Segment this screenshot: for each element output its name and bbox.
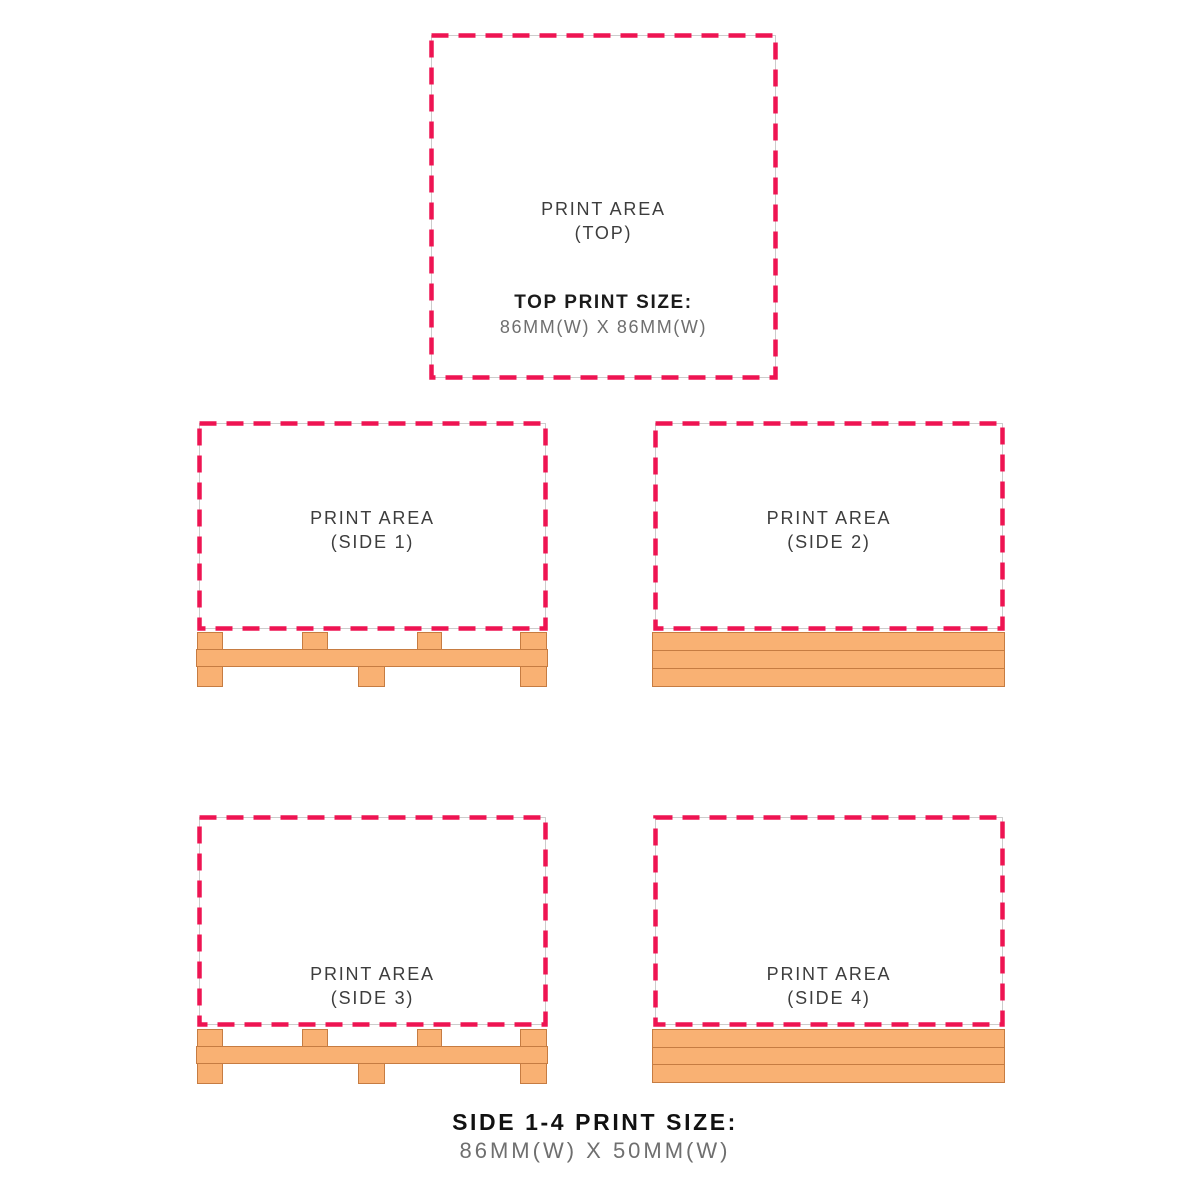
- pallet-slats-graphic-side4: [652, 1029, 1005, 1083]
- print-area-label-side3: PRINT AREA (SIDE 3): [197, 962, 548, 1010]
- pallet-base-graphic-side3: [196, 1029, 548, 1084]
- print-area-label-line2: (TOP): [429, 221, 778, 245]
- pallet-block: [302, 632, 328, 650]
- pallet-block: [197, 632, 223, 650]
- pallet-block: [197, 1029, 223, 1047]
- side-print-size-caption: SIDE 1-4 PRINT SIZE: 86MM(W) X 50MM(W): [295, 1108, 895, 1165]
- pallet-base-graphic-side1: [196, 632, 548, 687]
- print-template-diagram: PRINT AREA (TOP) TOP PRINT SIZE: 86MM(W)…: [0, 0, 1200, 1200]
- print-area-box-side4: PRINT AREA (SIDE 4): [653, 815, 1005, 1027]
- print-area-label-side2: PRINT AREA (SIDE 2): [653, 506, 1005, 554]
- pallet-foot-block: [358, 1063, 385, 1084]
- print-area-label-line1: PRINT AREA: [197, 506, 548, 530]
- top-print-size-block: TOP PRINT SIZE: 86MM(W) X 86MM(W): [429, 291, 778, 339]
- pallet-block: [417, 632, 442, 650]
- pallet-stringer-board: [196, 1046, 548, 1064]
- print-area-label-line1: PRINT AREA: [429, 197, 778, 221]
- pallet-block: [302, 1029, 328, 1047]
- top-print-size-value: 86MM(W) X 86MM(W): [429, 315, 778, 339]
- pallet-foot-block: [358, 666, 385, 687]
- print-area-box-side1: PRINT AREA (SIDE 1): [197, 421, 548, 631]
- pallet-stringer-board: [196, 649, 548, 667]
- pallet-foot-block: [197, 1063, 223, 1084]
- side-print-size-value: 86MM(W) X 50MM(W): [295, 1137, 895, 1165]
- pallet-foot-block: [520, 1063, 547, 1084]
- pallet-block: [520, 632, 547, 650]
- print-area-label-line1: PRINT AREA: [653, 962, 1005, 986]
- pallet-slat: [652, 632, 1005, 651]
- pallet-block: [417, 1029, 442, 1047]
- side-print-size-title: SIDE 1-4 PRINT SIZE:: [295, 1108, 895, 1137]
- pallet-foot-block: [520, 666, 547, 687]
- print-area-label-side4: PRINT AREA (SIDE 4): [653, 962, 1005, 1010]
- print-area-label-line2: (SIDE 2): [653, 530, 1005, 554]
- pallet-foot-block: [197, 666, 223, 687]
- pallet-slat: [652, 1064, 1005, 1083]
- print-area-label-line2: (SIDE 3): [197, 986, 548, 1010]
- pallet-slats-graphic-side2: [652, 632, 1005, 687]
- print-area-label-line1: PRINT AREA: [653, 506, 1005, 530]
- print-area-label-side1: PRINT AREA (SIDE 1): [197, 506, 548, 554]
- print-area-label-top: PRINT AREA (TOP): [429, 197, 778, 245]
- print-area-label-line2: (SIDE 4): [653, 986, 1005, 1010]
- print-area-label-line2: (SIDE 1): [197, 530, 548, 554]
- print-area-label-line1: PRINT AREA: [197, 962, 548, 986]
- print-area-box-top: PRINT AREA (TOP) TOP PRINT SIZE: 86MM(W)…: [429, 33, 778, 380]
- pallet-block: [520, 1029, 547, 1047]
- pallet-slat: [652, 650, 1005, 669]
- pallet-slat: [652, 1029, 1005, 1048]
- print-area-box-side3: PRINT AREA (SIDE 3): [197, 815, 548, 1027]
- top-print-size-title: TOP PRINT SIZE:: [429, 291, 778, 315]
- pallet-slat: [652, 668, 1005, 687]
- print-area-box-side2: PRINT AREA (SIDE 2): [653, 421, 1005, 631]
